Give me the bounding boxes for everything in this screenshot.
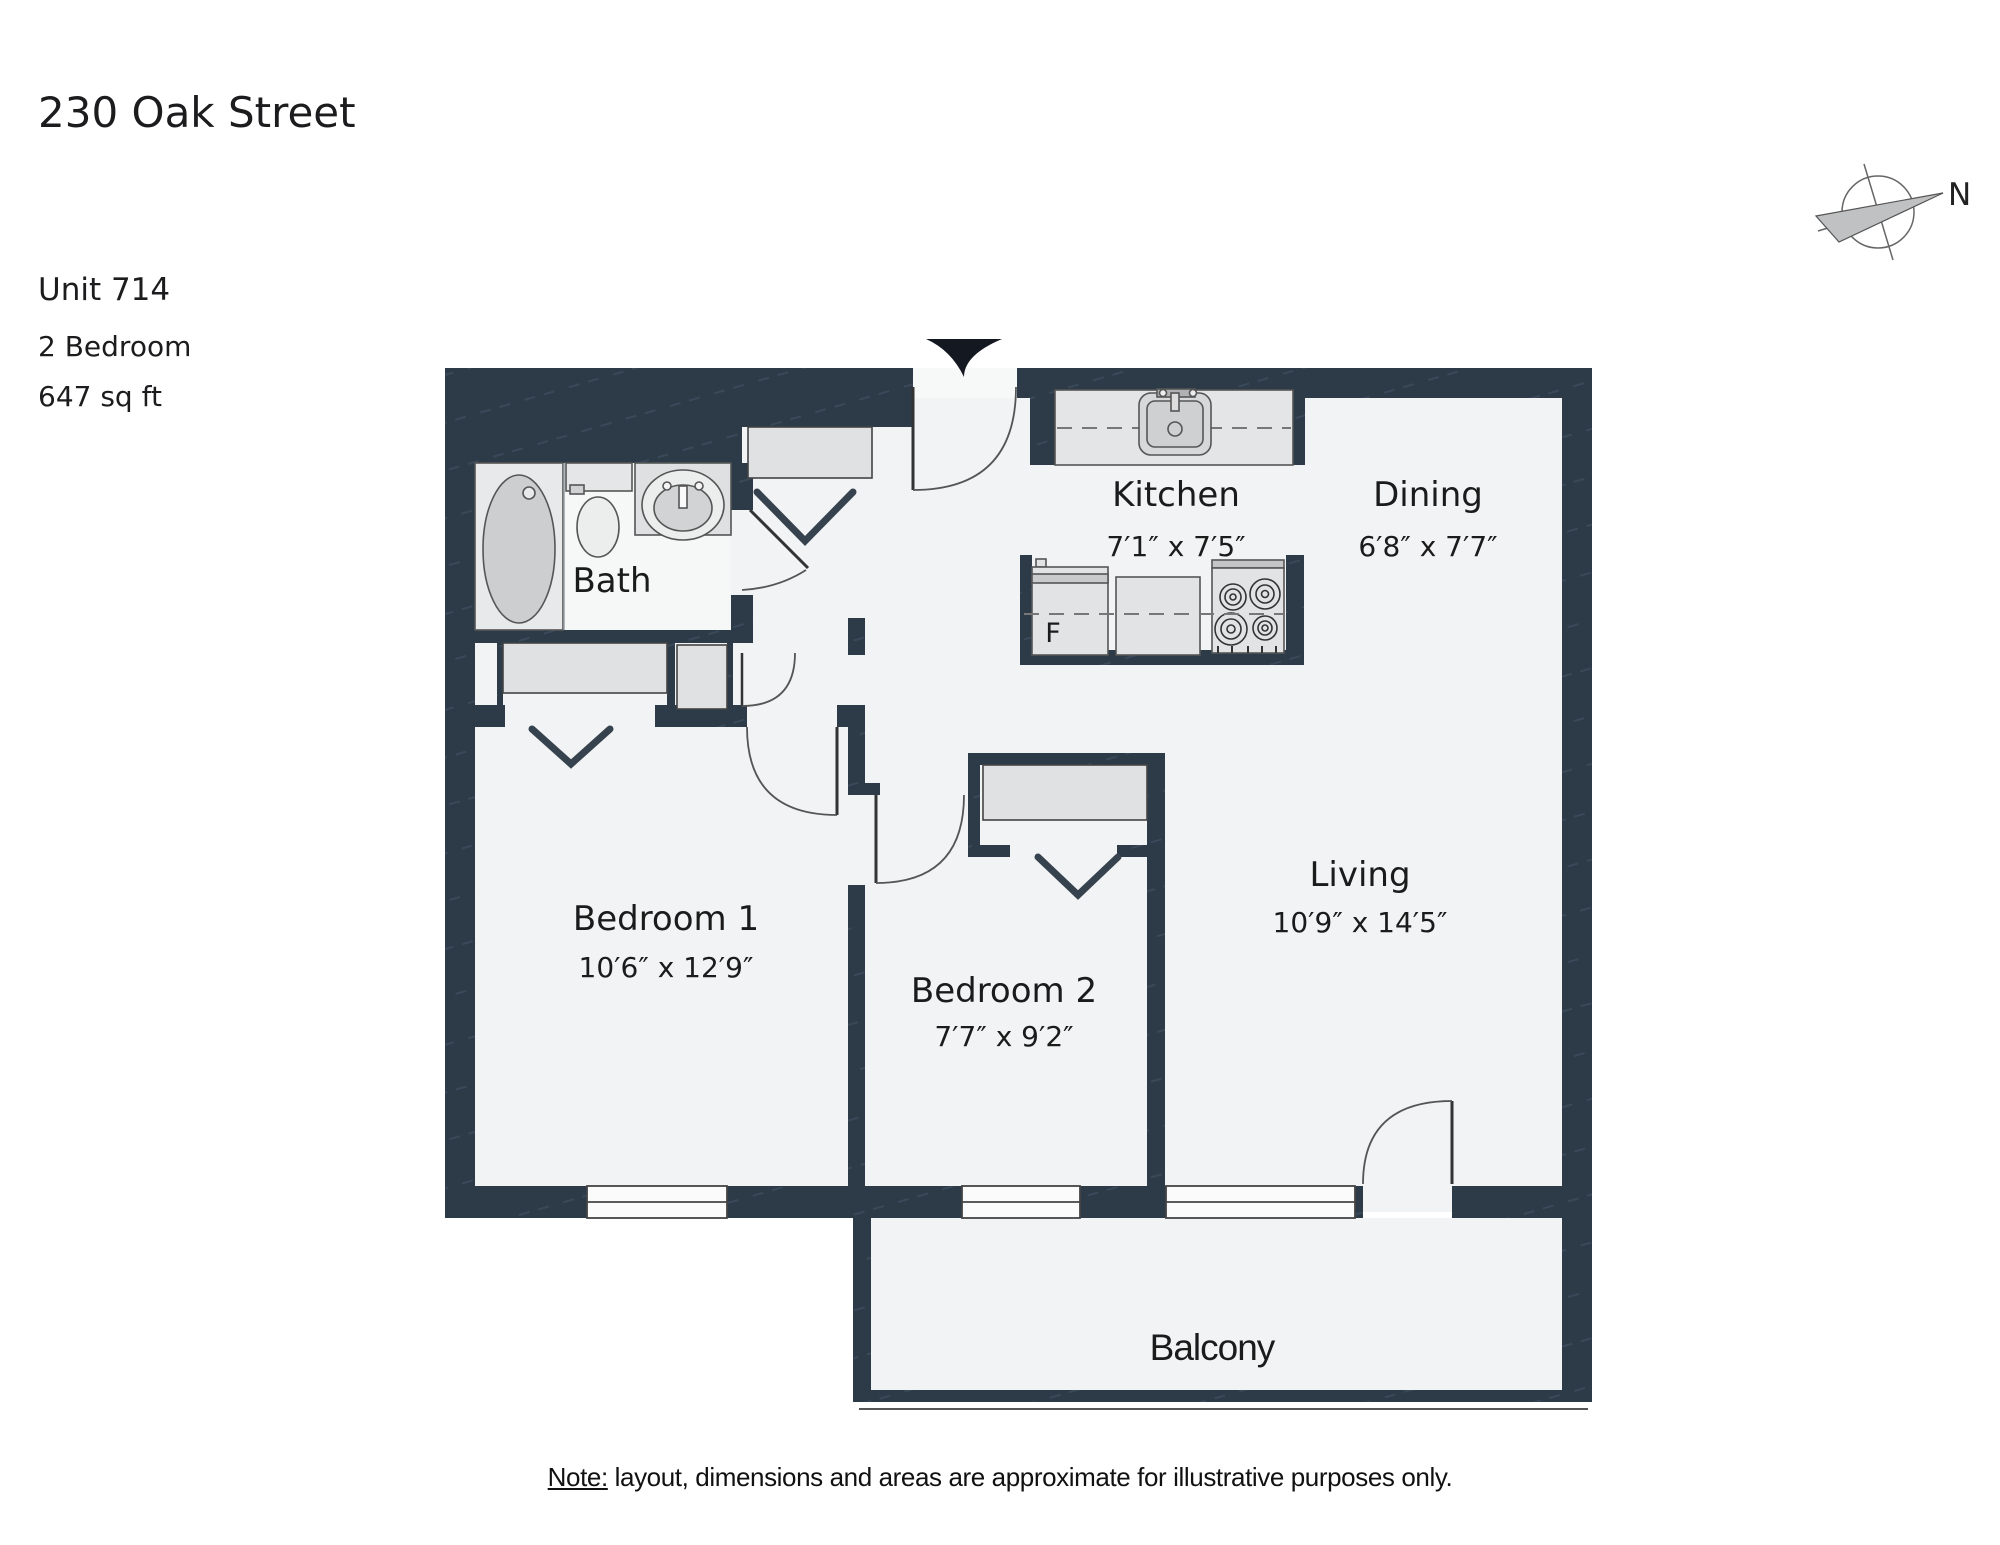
room-label-bedroom1: Bedroom 1 [573,899,759,939]
windows [587,1186,1355,1218]
kitchen-sink-counter [1055,389,1293,465]
fridge-label: F [1045,618,1061,649]
wall-outer-right [1562,368,1592,1218]
room-dims-dining: 6′8″ x 7′7″ [1358,530,1497,563]
compass-needle [1816,193,1943,242]
wall-topleft-block [445,368,742,463]
room-dims-bedroom2: 7′7″ x 9′2″ [934,1020,1073,1053]
wall-bottom-3 [1080,1186,1166,1218]
floorplan-page: 230 Oak Street Unit 714 2 Bedroom 647 sq… [0,0,2000,1545]
room-dims-bedroom1: 10′6″ x 12′9″ [579,951,754,984]
compass-north-label: N [1948,177,1971,213]
room-label-balcony: Balcony [1150,1327,1276,1368]
wall-closet-right [727,643,733,709]
entry-closet-shelf [748,427,872,478]
wall-bottom-5 [1452,1186,1592,1218]
note-label: Note: [548,1462,608,1492]
wall-bottom-2 [727,1186,962,1218]
wall-kitchen-left-upper [1030,368,1055,465]
wall-closet-left [497,643,503,705]
wall-bedroom1-top-left [445,705,505,727]
wall-hall-divider-top [848,618,865,655]
note-text: layout, dimensions and areas are approxi… [615,1462,1453,1492]
room-label-bath: Bath [572,561,651,601]
wall-kitchen-left-lower [1020,555,1032,665]
bedroom2-window [962,1186,1080,1218]
room-label-kitchen: Kitchen [1112,475,1240,515]
wall-closet-divider [667,643,675,705]
room-dims-living: 10′9″ x 14′5″ [1273,906,1448,939]
bedroom2-closet-shelf [983,765,1147,820]
wall-balcony-left [853,1218,871,1390]
room-label-bedroom2: Bedroom 2 [911,971,1097,1011]
bathroom-sink [635,463,731,540]
wall-bedroom2-closet-top [968,753,1162,765]
wall-bedroom2-door-jamb [865,783,880,795]
wall-bottom-1 [445,1186,587,1218]
wall-balcony-right [1562,1218,1592,1402]
wall-top-entry-left [742,368,913,427]
living-window [1166,1186,1355,1218]
wall-bedroom1-right [848,885,865,1186]
wall-kitchen-right-upper [1293,368,1305,465]
room-dims-kitchen: 7′1″ x 7′5″ [1106,530,1245,563]
floor-areas [450,368,1587,1394]
room-label-living: Living [1309,855,1410,895]
wall-kitchen-right-lower [1286,555,1304,665]
bathtub [475,463,563,630]
kitchen-counter [1116,577,1200,655]
wall-outer-left [445,368,475,1218]
wall-hall-divider-mid [848,713,865,795]
wall-balcony-bottom [853,1390,1592,1402]
disclaimer-note: Note: layout, dimensions and areas are a… [0,1462,2000,1493]
wall-bath-bottom [468,630,753,643]
wall-bedroom2-closet-stub-left [968,845,1010,857]
room-label-dining: Dining [1373,475,1483,515]
stove [1212,560,1284,653]
compass-icon: N [1816,164,1971,260]
wall-bedroom2-closet-left [968,765,980,850]
wall-bottom-4 [1355,1186,1363,1218]
floorplan-drawing: N Bath Kitchen 7′1″ x 7′5″ Dining 6′8″ x… [0,0,2000,1545]
wall-bedroom2-right [1147,753,1165,1186]
fridge [1032,559,1108,655]
bedroom1-closet-shelf [503,643,667,693]
hall-closet-shelf [677,645,727,709]
bedroom1-window [587,1186,727,1218]
